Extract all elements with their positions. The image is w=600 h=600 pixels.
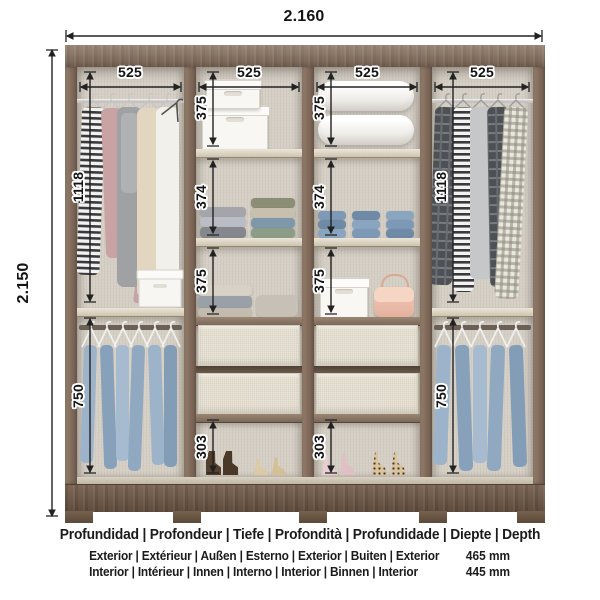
dim-section4-width: 525 [470,64,494,80]
dim-sec2-comp1: 375 [193,96,209,120]
dim-sec2-comp3: 375 [193,269,209,293]
dim-sec3-shoe: 303 [311,435,327,459]
dim-sec4-hang-top: 1118 [433,172,449,202]
wardrobe-dimension-diagram: 2.160 2.150 525 525 525 525 1118 750 375… [0,0,600,600]
dim-section2-width: 525 [237,64,261,80]
dim-total-width: 2.160 [283,8,324,26]
dim-sec3-comp2: 374 [311,185,327,209]
dim-section3-width: 525 [355,64,379,80]
dim-total-height: 2.150 [15,262,33,303]
dim-sec3-comp1: 375 [311,96,327,120]
dim-sec3-comp3: 375 [311,269,327,293]
dim-sec2-comp2: 374 [193,185,209,209]
dimension-lines [0,0,600,600]
dim-sec4-hang-bottom: 750 [433,384,449,408]
dim-sec2-shoe: 303 [193,435,209,459]
dim-sec1-hang-top: 1118 [70,172,86,202]
dim-sec1-hang-bottom: 750 [70,384,86,408]
dim-section1-width: 525 [118,64,142,80]
